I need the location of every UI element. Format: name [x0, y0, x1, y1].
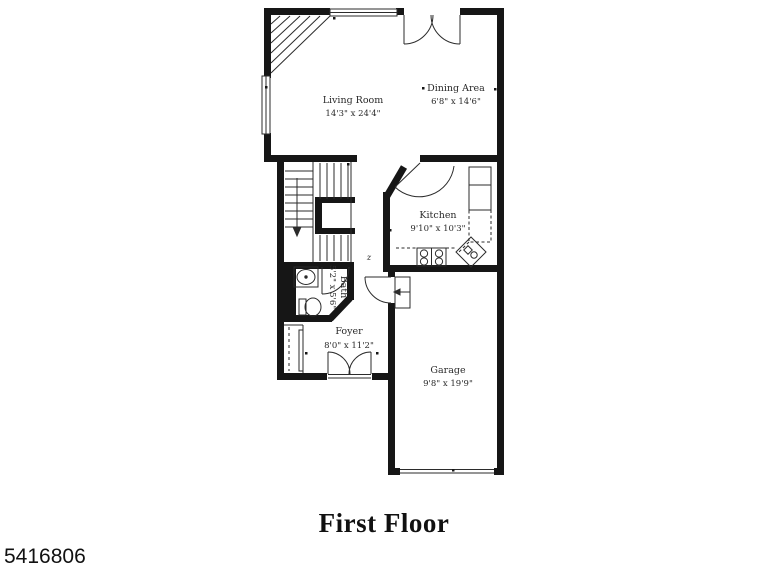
room-dims-bath: 5'2" x 5'6"	[327, 265, 337, 309]
toilet-icon	[305, 298, 321, 316]
garage-steps	[394, 277, 410, 308]
counter-upper	[469, 167, 491, 185]
corner-hatch	[271, 16, 330, 73]
room-label-garage: Garage	[430, 365, 466, 376]
plan-title: First Floor	[0, 508, 768, 539]
room-dims-dining-area: 6'8" x 14'6"	[431, 97, 481, 107]
garage-overhead-door	[400, 470, 494, 474]
room-dims-living-room: 14'3" x 24'4"	[325, 109, 380, 119]
garage-entry-door	[365, 277, 391, 303]
room-dims-foyer: 8'0" x 11'2"	[324, 341, 374, 351]
counter-dashed	[469, 210, 491, 242]
foyer-closet	[284, 325, 303, 373]
photo-id: 5416806	[4, 545, 86, 569]
french-door-dining	[404, 15, 460, 44]
room-dims-kitchen: 9'10" x 10'3"	[410, 224, 465, 234]
room-label-foyer: Foyer	[335, 326, 363, 337]
floorplan-page: Living Room 14'3" x 24'4" Dining Area 6'…	[0, 0, 768, 575]
walls	[264, 8, 504, 475]
room-dims-garage: 9'8" x 19'9"	[423, 379, 473, 389]
room-labels: Living Room 14'3" x 24'4" Dining Area 6'…	[323, 83, 485, 389]
room-label-kitchen: Kitchen	[419, 210, 456, 221]
room-label-living-room: Living Room	[323, 95, 384, 106]
stove-icon	[417, 248, 446, 266]
refrigerator	[469, 185, 491, 210]
floorplan-drawing: Living Room 14'3" x 24'4" Dining Area 6'…	[0, 0, 768, 575]
closet-door	[299, 330, 303, 371]
front-double-door	[328, 352, 371, 378]
room-label-dining-area: Dining Area	[427, 83, 485, 94]
bath-fixtures	[294, 267, 321, 316]
stair-note-marker: z	[366, 253, 372, 262]
room-label-bath: Bath	[338, 276, 349, 299]
